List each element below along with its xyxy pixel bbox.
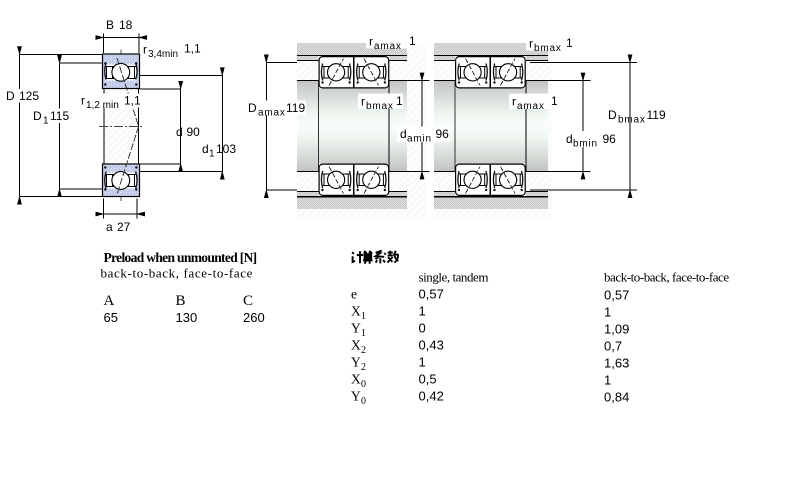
svg-text:amax: amax <box>517 101 545 112</box>
svg-text:1: 1 <box>361 311 366 322</box>
svg-text:C: C <box>243 293 253 309</box>
svg-text:Y: Y <box>351 389 361 404</box>
svg-text:96: 96 <box>436 127 450 141</box>
svg-text:1: 1 <box>419 355 426 370</box>
svg-text:1,1: 1,1 <box>124 94 141 108</box>
svg-text:90: 90 <box>187 125 201 139</box>
svg-text:103: 103 <box>216 142 236 156</box>
svg-text:1: 1 <box>419 304 426 319</box>
svg-text:1,09: 1,09 <box>604 322 629 337</box>
svg-text:bmax: bmax <box>618 115 646 126</box>
svg-text:1: 1 <box>43 116 49 127</box>
svg-text:D: D <box>6 89 15 103</box>
svg-text:1: 1 <box>566 36 573 50</box>
svg-text:1: 1 <box>396 94 403 108</box>
svg-text:0: 0 <box>419 321 426 336</box>
svg-text:r: r <box>81 94 85 108</box>
svg-text:back-to-back, face-to-face: back-to-back, face-to-face <box>101 266 254 281</box>
svg-text:r: r <box>512 95 516 109</box>
svg-text:bmax: bmax <box>366 101 394 112</box>
svg-text:0,57: 0,57 <box>604 288 629 303</box>
svg-text:d: d <box>566 132 573 146</box>
svg-text:B: B <box>106 18 114 32</box>
svg-text:Y: Y <box>351 355 361 370</box>
svg-text:0,84: 0,84 <box>604 390 629 405</box>
svg-text:1: 1 <box>604 373 611 388</box>
svg-text:115: 115 <box>50 109 69 123</box>
svg-text:1: 1 <box>209 149 215 160</box>
svg-text:d: d <box>202 142 209 156</box>
svg-text:1,63: 1,63 <box>604 356 629 371</box>
svg-text:260: 260 <box>243 310 265 325</box>
svg-text:e: e <box>351 287 357 302</box>
svg-text:D: D <box>248 101 257 115</box>
svg-text:18: 18 <box>119 18 133 32</box>
svg-text:65: 65 <box>104 310 118 325</box>
svg-text:Preload when unmounted [N]: Preload when unmounted [N] <box>104 250 257 265</box>
svg-text:d: d <box>400 127 407 141</box>
svg-text:D: D <box>33 109 42 123</box>
svg-text:125: 125 <box>19 89 39 103</box>
svg-text:a: a <box>106 220 113 234</box>
svg-text:1: 1 <box>604 305 611 320</box>
svg-text:single, tandem: single, tandem <box>419 270 489 285</box>
svg-text:1: 1 <box>361 328 366 339</box>
svg-text:bmin: bmin <box>573 139 598 150</box>
svg-text:0: 0 <box>361 379 366 390</box>
svg-text:1: 1 <box>409 34 416 48</box>
svg-text:X: X <box>351 338 361 353</box>
svg-text:0,42: 0,42 <box>419 389 444 404</box>
svg-text:2: 2 <box>361 345 366 356</box>
svg-text:27: 27 <box>117 220 131 234</box>
svg-text:X: X <box>351 304 361 319</box>
svg-text:130: 130 <box>176 310 198 325</box>
svg-text:0,43: 0,43 <box>419 338 444 353</box>
svg-text:back-to-back, face-to-face: back-to-back, face-to-face <box>604 270 729 285</box>
svg-text:r: r <box>529 37 533 51</box>
svg-text:A: A <box>104 293 115 309</box>
svg-text:B: B <box>176 293 186 309</box>
svg-text:3,4min: 3,4min <box>148 49 178 60</box>
svg-text:119: 119 <box>647 108 666 122</box>
svg-text:r: r <box>369 35 373 49</box>
svg-text:amax: amax <box>374 41 402 52</box>
svg-text:2: 2 <box>361 362 366 373</box>
svg-text:r: r <box>361 95 365 109</box>
svg-text:1: 1 <box>551 94 558 108</box>
svg-text:r: r <box>143 43 147 57</box>
svg-text:D: D <box>608 108 617 122</box>
svg-text:0,5: 0,5 <box>419 372 437 387</box>
svg-text:amin: amin <box>407 134 432 145</box>
svg-text:119: 119 <box>286 101 305 115</box>
svg-text:1,2 min: 1,2 min <box>86 100 119 111</box>
svg-text:0: 0 <box>361 396 366 407</box>
svg-text:0,7: 0,7 <box>604 339 622 354</box>
svg-text:X: X <box>351 372 361 387</box>
svg-text:bmax: bmax <box>534 43 562 54</box>
svg-text:0,57: 0,57 <box>419 287 444 302</box>
svg-text:d: d <box>176 125 183 139</box>
svg-text:96: 96 <box>603 132 617 146</box>
svg-text:amax: amax <box>258 108 286 119</box>
svg-text:1,1: 1,1 <box>184 42 201 56</box>
svg-text:Y: Y <box>351 321 361 336</box>
